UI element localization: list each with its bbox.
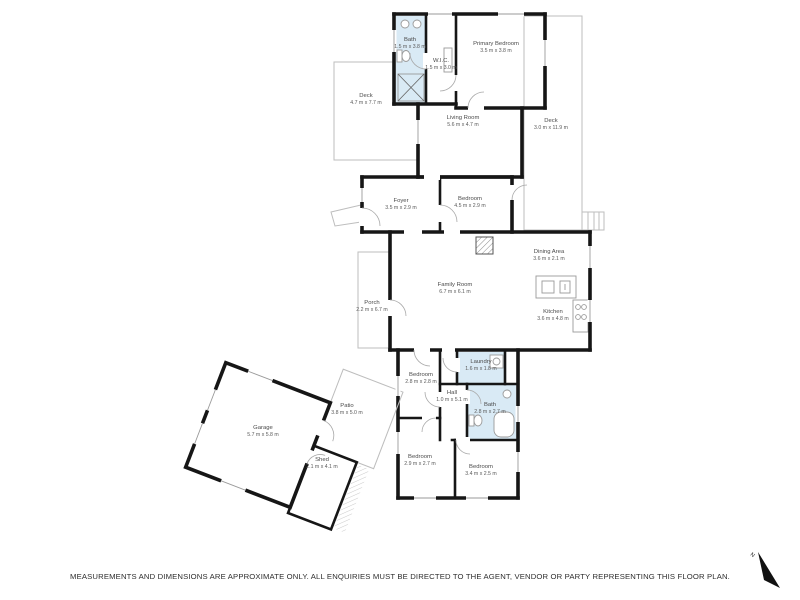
- svg-text:6.7 m x 6.1 m: 6.7 m x 6.1 m: [439, 289, 470, 295]
- svg-text:2.2 m x 6.7 m: 2.2 m x 6.7 m: [356, 307, 387, 313]
- svg-text:Living Room: Living Room: [447, 115, 480, 121]
- svg-text:1.5 m x 3.0 m: 1.5 m x 3.0 m: [425, 65, 456, 71]
- room-label-kitchen: Kitchen 3.6 m x 4.8 m: [537, 309, 568, 322]
- svg-text:3.5 m x 2.9 m: 3.5 m x 2.9 m: [385, 205, 416, 211]
- svg-text:Family Room: Family Room: [438, 282, 473, 288]
- sink-icon: [503, 390, 511, 398]
- svg-text:3.8 m x 5.0 m: 3.8 m x 5.0 m: [331, 410, 362, 416]
- svg-text:Foyer: Foyer: [393, 198, 408, 204]
- svg-text:3.4 m x 2.5 m: 3.4 m x 2.5 m: [465, 471, 496, 477]
- svg-text:Bedroom: Bedroom: [408, 454, 432, 460]
- svg-text:Deck: Deck: [544, 118, 557, 124]
- svg-text:Laundry: Laundry: [470, 359, 491, 365]
- outbuildings-group: [181, 328, 403, 536]
- room-label-patio: Patio 3.8 m x 5.0 m: [331, 403, 362, 416]
- north-arrow: N: [749, 552, 780, 588]
- bathtub-icon: [494, 412, 514, 437]
- toilet-icon: [397, 50, 402, 62]
- kitchen-counter: [573, 300, 588, 332]
- svg-text:3.0 m x 11.9 m: 3.0 m x 11.9 m: [534, 125, 568, 131]
- toilet-icon: [469, 415, 474, 426]
- room-label-bedroom-mid: Bedroom 4.5 m x 2.9 m: [454, 196, 485, 209]
- svg-text:Porch: Porch: [364, 300, 379, 306]
- svg-text:Primary Bedroom: Primary Bedroom: [473, 41, 519, 47]
- fireplace-icon: [476, 237, 493, 254]
- patio-outline: [314, 369, 403, 468]
- svg-text:Bedroom: Bedroom: [469, 464, 493, 470]
- svg-text:1.5 m x 3.8 m: 1.5 m x 3.8 m: [394, 44, 425, 50]
- svg-text:2.8 m x 2.7 m: 2.8 m x 2.7 m: [474, 409, 505, 415]
- north-arrow-icon: [758, 552, 780, 588]
- room-label-family-room: Family Room 6.7 m x 6.1 m: [438, 282, 473, 295]
- room-label-dining-area: Dining Area 3.6 m x 2.1 m: [533, 249, 565, 262]
- kitchen-island: [536, 276, 576, 298]
- deck-steps: [582, 212, 604, 230]
- svg-text:Bedroom: Bedroom: [458, 196, 482, 202]
- svg-text:Bedroom: Bedroom: [409, 372, 433, 378]
- svg-text:Patio: Patio: [340, 403, 354, 409]
- svg-text:3.6 m x 4.8 m: 3.6 m x 4.8 m: [537, 316, 568, 322]
- svg-text:4.5 m x 2.9 m: 4.5 m x 2.9 m: [454, 203, 485, 209]
- svg-text:Bath: Bath: [404, 37, 416, 43]
- burner-icon: [576, 305, 581, 310]
- sink-icon: [413, 20, 421, 28]
- room-label-porch: Porch 2.2 m x 6.7 m: [356, 300, 387, 313]
- svg-text:1.0 m x 5.1 m: 1.0 m x 5.1 m: [436, 397, 467, 403]
- svg-text:3.5 m x 3.8 m: 3.5 m x 3.8 m: [480, 48, 511, 54]
- burner-icon: [582, 305, 587, 310]
- svg-text:2.1 m x 4.1 m: 2.1 m x 4.1 m: [306, 464, 337, 470]
- burner-icon: [576, 315, 581, 320]
- svg-text:1.6 m x 1.8 m: 1.6 m x 1.8 m: [465, 366, 496, 372]
- svg-text:3.6 m x 2.1 m: 3.6 m x 2.1 m: [533, 256, 564, 262]
- svg-text:Kitchen: Kitchen: [543, 309, 563, 315]
- disclaimer-text: MEASUREMENTS AND DIMENSIONS ARE APPROXIM…: [70, 572, 730, 581]
- room-label-living-room: Living Room 5.6 m x 4.7 m: [447, 115, 480, 128]
- burner-icon: [582, 315, 587, 320]
- room-label-bedroom-bottom-left: Bedroom 2.9 m x 2.7 m: [404, 454, 435, 467]
- svg-text:Dining Area: Dining Area: [534, 249, 565, 255]
- svg-text:Hall: Hall: [447, 390, 457, 396]
- svg-text:5.7 m x 5.8 m: 5.7 m x 5.8 m: [247, 432, 278, 438]
- deck-right-outline: [524, 16, 604, 230]
- floor-plan-page: Bath 1.5 m x 3.8 m W.I.C. 1.5 m x 3.0 m …: [0, 0, 800, 600]
- sink-icon: [401, 20, 409, 28]
- svg-text:W.I.C.: W.I.C.: [433, 58, 449, 64]
- svg-text:Garage: Garage: [253, 425, 273, 431]
- svg-text:Bath: Bath: [484, 402, 496, 408]
- toilet-icon: [474, 415, 482, 426]
- north-label: N: [749, 552, 756, 559]
- svg-text:5.6 m x 4.7 m: 5.6 m x 4.7 m: [447, 122, 478, 128]
- room-label-foyer: Foyer 3.5 m x 2.9 m: [385, 198, 416, 211]
- room-label-primary-bedroom: Primary Bedroom 3.5 m x 3.8 m: [473, 41, 519, 54]
- entry-steps: [331, 205, 361, 226]
- room-label-deck-right: Deck 3.0 m x 11.9 m: [534, 118, 568, 131]
- svg-text:2.9 m x 2.7 m: 2.9 m x 2.7 m: [404, 461, 435, 467]
- room-label-bedroom-upper-left: Bedroom 2.8 m x 2.8 m: [405, 372, 436, 385]
- sink-icon: [542, 281, 554, 293]
- svg-text:4.7 m x 7.7 m: 4.7 m x 7.7 m: [350, 100, 381, 106]
- toilet-icon: [402, 51, 410, 62]
- floor-plan-svg: Bath 1.5 m x 3.8 m W.I.C. 1.5 m x 3.0 m …: [0, 0, 800, 600]
- room-label-deck-left: Deck 4.7 m x 7.7 m: [350, 93, 381, 106]
- room-label-garage: Garage 5.7 m x 5.8 m: [247, 425, 278, 438]
- room-label-bedroom-bottom-right: Bedroom 3.4 m x 2.5 m: [465, 464, 496, 477]
- svg-text:Deck: Deck: [359, 93, 372, 99]
- svg-text:2.8 m x 2.8 m: 2.8 m x 2.8 m: [405, 379, 436, 385]
- svg-text:Shed: Shed: [315, 457, 329, 463]
